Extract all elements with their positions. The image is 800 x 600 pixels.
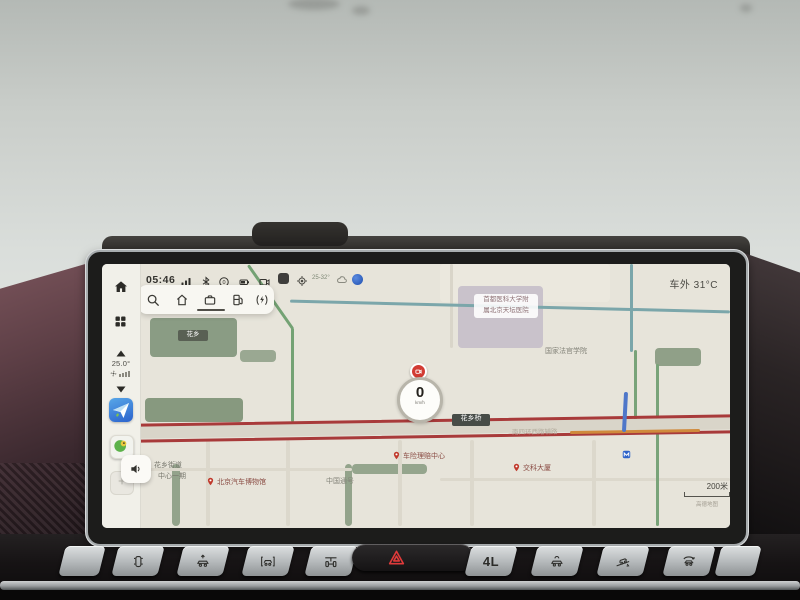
map-watermark: 高德地图 (696, 500, 718, 508)
traffic-report-icon[interactable] (352, 274, 363, 285)
map-scale-bar (684, 492, 730, 497)
home-button[interactable] (113, 279, 129, 295)
car-brackets-icon (260, 554, 276, 569)
locate-target-icon[interactable] (296, 274, 308, 292)
hw-4l-button[interactable]: 4L (464, 546, 517, 576)
outside-temp-label: 车外 31°C (669, 276, 718, 291)
grid-icon (113, 314, 128, 329)
car-cockpit-scene: 花乡 花乡桥 南四环西路辅路 首都医科大学附 属北京天坛医院 国家法官学院 中国… (0, 0, 800, 600)
infotainment-screen: 花乡 花乡桥 南四环西路辅路 首都医科大学附 属北京天坛医院 国家法官学院 中国… (102, 264, 730, 528)
map-pin-icon (206, 476, 215, 487)
hw-body-hold-button[interactable] (241, 546, 294, 576)
map-mode-icon[interactable] (278, 273, 289, 284)
weather-range-label: 25-32° (312, 275, 330, 281)
chrome-trim (0, 581, 800, 590)
poi-jiaoke-tower[interactable]: 交科大厦 (512, 462, 551, 473)
charging-icon (255, 293, 269, 307)
block-label-line1: 花乡街道 (154, 460, 182, 470)
poi-claims-center[interactable]: 车险理赔中心 (392, 450, 445, 461)
hospital-label-line1: 首都医科大学附 (474, 294, 538, 305)
chevron-up-icon (115, 349, 127, 358)
car-raise-icon (195, 554, 211, 569)
car-rotate-icon (681, 554, 697, 569)
corner-shadow (740, 4, 752, 12)
map-green-strip-right (655, 348, 701, 366)
charging-station-button[interactable] (255, 293, 269, 307)
map-green-block (145, 398, 243, 422)
weather-cloud-icon (336, 273, 348, 291)
hospital-label-line2: 属北京天坛医院 (474, 305, 538, 316)
map-green-strip (240, 350, 276, 362)
mute-button[interactable] (121, 455, 151, 483)
hw-diff-lock-button[interactable] (304, 546, 357, 576)
hw-suspension-raise-button[interactable] (176, 546, 229, 576)
map-pin-icon (392, 450, 401, 461)
speed-value: 0 (400, 385, 440, 400)
dash-camera-hump (252, 222, 348, 246)
wiper-shadow (352, 6, 370, 15)
poi-label: 车险理赔中心 (403, 451, 445, 461)
hw-car-mode-button[interactable] (530, 546, 583, 576)
map-road-minor (470, 440, 474, 526)
map-road-smooth (634, 350, 637, 422)
paper-plane-icon (109, 398, 133, 422)
hw-blank-button-right[interactable] (714, 546, 761, 576)
map-road-smooth (630, 264, 633, 352)
hw-blank-button-left[interactable] (58, 546, 105, 576)
sidebar: 25.0° (102, 264, 141, 528)
judges-college-label: 国家法官学院 (545, 346, 587, 356)
app-drawer-button[interactable] (113, 314, 129, 330)
cabin-temp-label: 25.0° (102, 359, 140, 368)
map-road-smooth (291, 328, 294, 422)
map-green-row (352, 464, 427, 474)
nav-app-icon[interactable] (109, 398, 133, 422)
hw-hill-descent-button[interactable] (596, 546, 649, 576)
map-road-smooth (656, 364, 659, 526)
map-road-minor (592, 440, 596, 526)
temp-down-button[interactable] (115, 381, 131, 397)
search-icon (146, 293, 160, 307)
hw-turn-assist-button[interactable] (662, 546, 715, 576)
hazard-lights-button[interactable] (352, 544, 474, 571)
home-destination-icon (175, 293, 189, 307)
crsc-label: 中国通号 (326, 476, 354, 486)
briefcase-icon (203, 293, 217, 307)
map-tree-strip (345, 464, 352, 526)
block-label-line2: 中心一期 (158, 471, 186, 481)
road-name-label: 南四环西路辅路 (512, 426, 558, 437)
fan-icon (110, 370, 117, 377)
map-pin-icon (512, 462, 521, 473)
navigation-map[interactable]: 花乡 花乡桥 南四环西路辅路 首都医科大学附 属北京天坛医院 国家法官学院 中国… (140, 264, 730, 528)
bridge-sign: 花乡桥 (452, 414, 490, 426)
quick-nav-pill (140, 285, 274, 314)
car-top-view-icon (131, 554, 146, 569)
nav-home-button[interactable] (175, 293, 189, 307)
hazard-triangle-icon (388, 550, 405, 565)
4l-label: 4L (483, 554, 499, 569)
poi-label: 北京汽车博物馆 (217, 477, 266, 487)
hospital-label: 首都医科大学附 属北京天坛医院 (474, 294, 538, 318)
search-button[interactable] (146, 293, 160, 307)
poi-auto-museum[interactable]: 北京汽车博物馆 (206, 476, 266, 487)
park-sign: 花乡 (178, 330, 208, 341)
chevron-down-icon (115, 385, 127, 394)
hill-descent-icon (615, 554, 631, 569)
hw-drive-mode-button[interactable] (111, 546, 164, 576)
axle-diff-lock-icon (323, 554, 339, 569)
lower-dash-shadow (0, 590, 800, 600)
fuel-pump-icon (231, 293, 245, 307)
nav-work-button[interactable] (203, 293, 217, 307)
parrot-icon (111, 436, 131, 456)
map-road-minor (286, 440, 290, 526)
active-tab-indicator (197, 309, 225, 311)
fan-speed-indicator (110, 370, 130, 377)
vehicle-speed-badge: 0 km/h (397, 377, 443, 423)
home-icon (113, 279, 129, 295)
gas-station-button[interactable] (231, 293, 245, 307)
poi-label: 交科大厦 (523, 463, 551, 473)
car-lock-icon (549, 554, 565, 569)
speed-unit: km/h (402, 400, 438, 405)
speaker-icon (129, 462, 143, 476)
map-scale-label: 200米 (680, 481, 728, 492)
metro-station-icon[interactable] (622, 446, 631, 464)
